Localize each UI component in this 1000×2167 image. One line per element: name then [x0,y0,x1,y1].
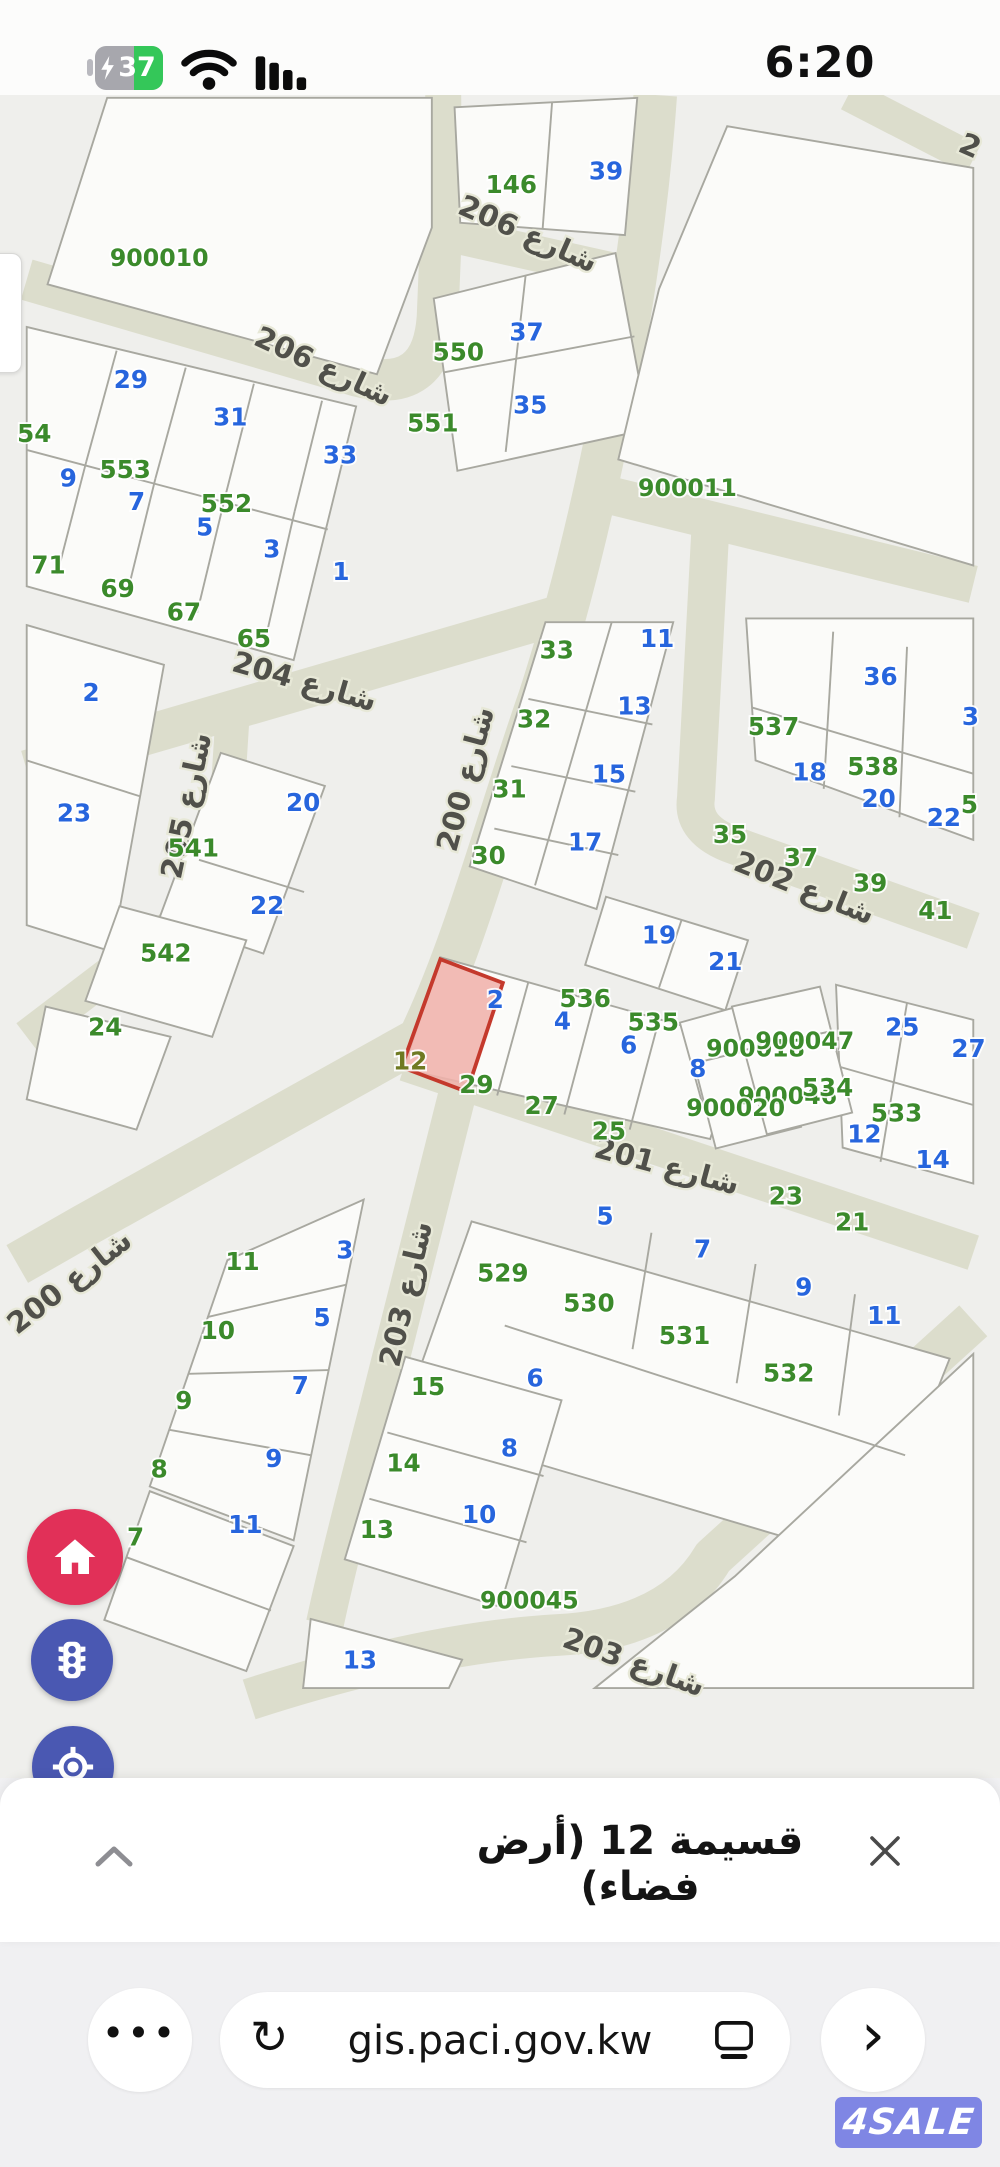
parcel-number: 3 [962,702,979,731]
watermark-text: 4SALE [841,2102,977,2143]
battery-cap [87,59,93,76]
parcel-info-sheet: قسيمة 12 (أرض فضاء) [0,1778,1000,1942]
block-number: 553 [99,455,150,484]
status-bar: 37 6:20 [0,0,1000,95]
block-number: 900011 [638,474,737,502]
parcel-number: 5 [196,513,213,542]
chevron-up-icon[interactable] [92,1844,136,1870]
parcel-number: 4 [554,1007,571,1036]
chevron-right-icon: › [861,2005,885,2075]
block-number: 5 [961,790,978,819]
block-number: 900010 [110,244,209,272]
watermark-badge: 4SALE [835,2097,982,2148]
bottom-area: قسيمة 12 (أرض فضاء) ••• ↻ gis.paci.gov.k… [0,1778,1000,2167]
block-number: 12 [393,1046,427,1075]
block-number: 550 [433,337,484,366]
block-number: 900020 [686,1094,785,1122]
block-number: 551 [407,408,458,437]
parcel-number: 2 [487,985,504,1014]
block-number: 23 [769,1182,803,1211]
screen: 37 6:20 [0,0,1000,2167]
parcel-number: 27 [951,1034,985,1063]
parcel-number: 20 [286,788,320,817]
parcel-number: 15 [592,760,626,789]
parcel-number: 11 [228,1510,262,1539]
parcel-number: 22 [250,891,284,920]
block-number: 30 [472,841,506,870]
parcel-number: 19 [642,920,676,949]
parcel-number: 36 [863,662,897,691]
reload-icon[interactable]: ↻ [250,2014,289,2060]
block-number: 27 [525,1091,559,1120]
block-number: 37 [784,843,818,872]
parcel-number: 13 [617,691,651,720]
block-number: 24 [88,1012,122,1041]
parcel-number: 25 [885,1012,919,1041]
parcel-number: 7 [128,487,145,516]
parcel-number: 7 [694,1235,711,1264]
parcel-number: 2 [83,678,100,707]
block-number: 14 [386,1449,420,1478]
traffic-button[interactable] [31,1619,113,1701]
parcel-number: 12 [847,1119,881,1148]
block-number: 541 [168,833,219,862]
block-number: 15 [411,1372,445,1401]
block-number: 67 [167,598,201,627]
block-number: 41 [918,896,952,925]
block-number: 29 [459,1070,493,1099]
block-number: 9 [175,1386,192,1415]
parcel-number: 21 [708,947,742,976]
sheet-title: قسيمة 12 (أرض فضاء) [430,1818,850,1910]
parcel-number: 5 [313,1303,330,1332]
home-icon [51,1533,99,1581]
parcel-number: 13 [343,1646,377,1675]
block-number: 538 [847,752,898,781]
url-text[interactable]: gis.paci.gov.kw [310,2018,690,2064]
traffic-light-icon [49,1637,95,1683]
wifi-icon [180,47,238,91]
block-number: 11 [225,1247,259,1276]
block-number: 13 [360,1515,394,1544]
parcel-number: 11 [640,624,674,653]
block-number: 10 [201,1316,235,1345]
parcel-number: 37 [509,318,543,347]
block-number: 537 [748,712,799,741]
tab-window-icon[interactable] [712,2018,756,2062]
parcel-number: 17 [568,828,602,857]
block-number: 534 [802,1073,853,1102]
block-number: 146 [486,170,537,199]
battery-charging-icon: 37 [95,46,163,90]
address-bar[interactable]: ↻ gis.paci.gov.kw [220,1992,790,2088]
ellipsis-icon: ••• [102,2014,178,2066]
block-number: 65 [237,624,271,653]
block-number: 33 [540,636,574,665]
home-button[interactable] [27,1509,123,1605]
block-number: 54 [17,419,51,448]
block-number: 7 [127,1523,144,1552]
block-number: 532 [763,1359,814,1388]
block-number: 21 [835,1207,869,1236]
parcel-number: 9 [265,1444,282,1473]
block-number: 32 [517,705,551,734]
parcel-number: 8 [501,1434,518,1463]
parcel-number: 8 [689,1054,706,1083]
block-number: 35 [713,820,747,849]
parcel-number: 20 [862,784,896,813]
parcel-number: 29 [114,365,148,394]
block-number: 8 [151,1454,168,1483]
block-number: 529 [477,1258,528,1287]
partial-map-control[interactable] [0,253,22,373]
block-number: 900047 [755,1027,854,1055]
map[interactable]: شارع 206شارع 206شارع 204شارع 205شارع 200… [0,95,1000,1778]
parcel-number: 11 [867,1301,901,1330]
block-number: 25 [592,1116,626,1145]
close-icon[interactable] [864,1830,906,1872]
parcel-number: 33 [323,441,357,470]
parcel-number: 6 [620,1030,637,1059]
block-number: 69 [100,574,134,603]
forward-button[interactable]: › [821,1988,925,2092]
browser-menu-button[interactable]: ••• [88,1988,192,2092]
battery-percent: 37 [111,46,163,90]
parcel-number: 10 [462,1500,496,1529]
parcel-number: 9 [60,463,77,492]
block-number: 39 [853,868,887,897]
clock: 6:20 [745,38,895,88]
parcel-number: 7 [292,1371,309,1400]
block-number: 31 [492,775,526,804]
parcel-number: 5 [597,1202,614,1231]
parcel-number: 6 [526,1363,543,1392]
parcel-number: 39 [589,157,623,186]
block-number: 900045 [480,1586,579,1614]
block-number: 531 [659,1321,710,1350]
cellular-bars-icon [252,48,312,90]
parcel-number: 35 [513,390,547,419]
parcel-number: 18 [792,758,826,787]
parcel-number: 1 [332,557,349,586]
parcel-number: 3 [336,1236,353,1265]
parcel-number: 14 [915,1145,949,1174]
parcel-number: 22 [927,803,961,832]
block-number: 71 [31,550,65,579]
parcel-number: 9 [795,1273,812,1302]
block-number: 530 [563,1289,614,1318]
parcel-number: 23 [57,798,91,827]
block-number: 542 [140,938,191,967]
parcel-number: 31 [213,403,247,432]
map-canvas[interactable]: شارع 206شارع 206شارع 204شارع 205شارع 200… [0,95,1000,1778]
parcel-number: 3 [263,534,280,563]
